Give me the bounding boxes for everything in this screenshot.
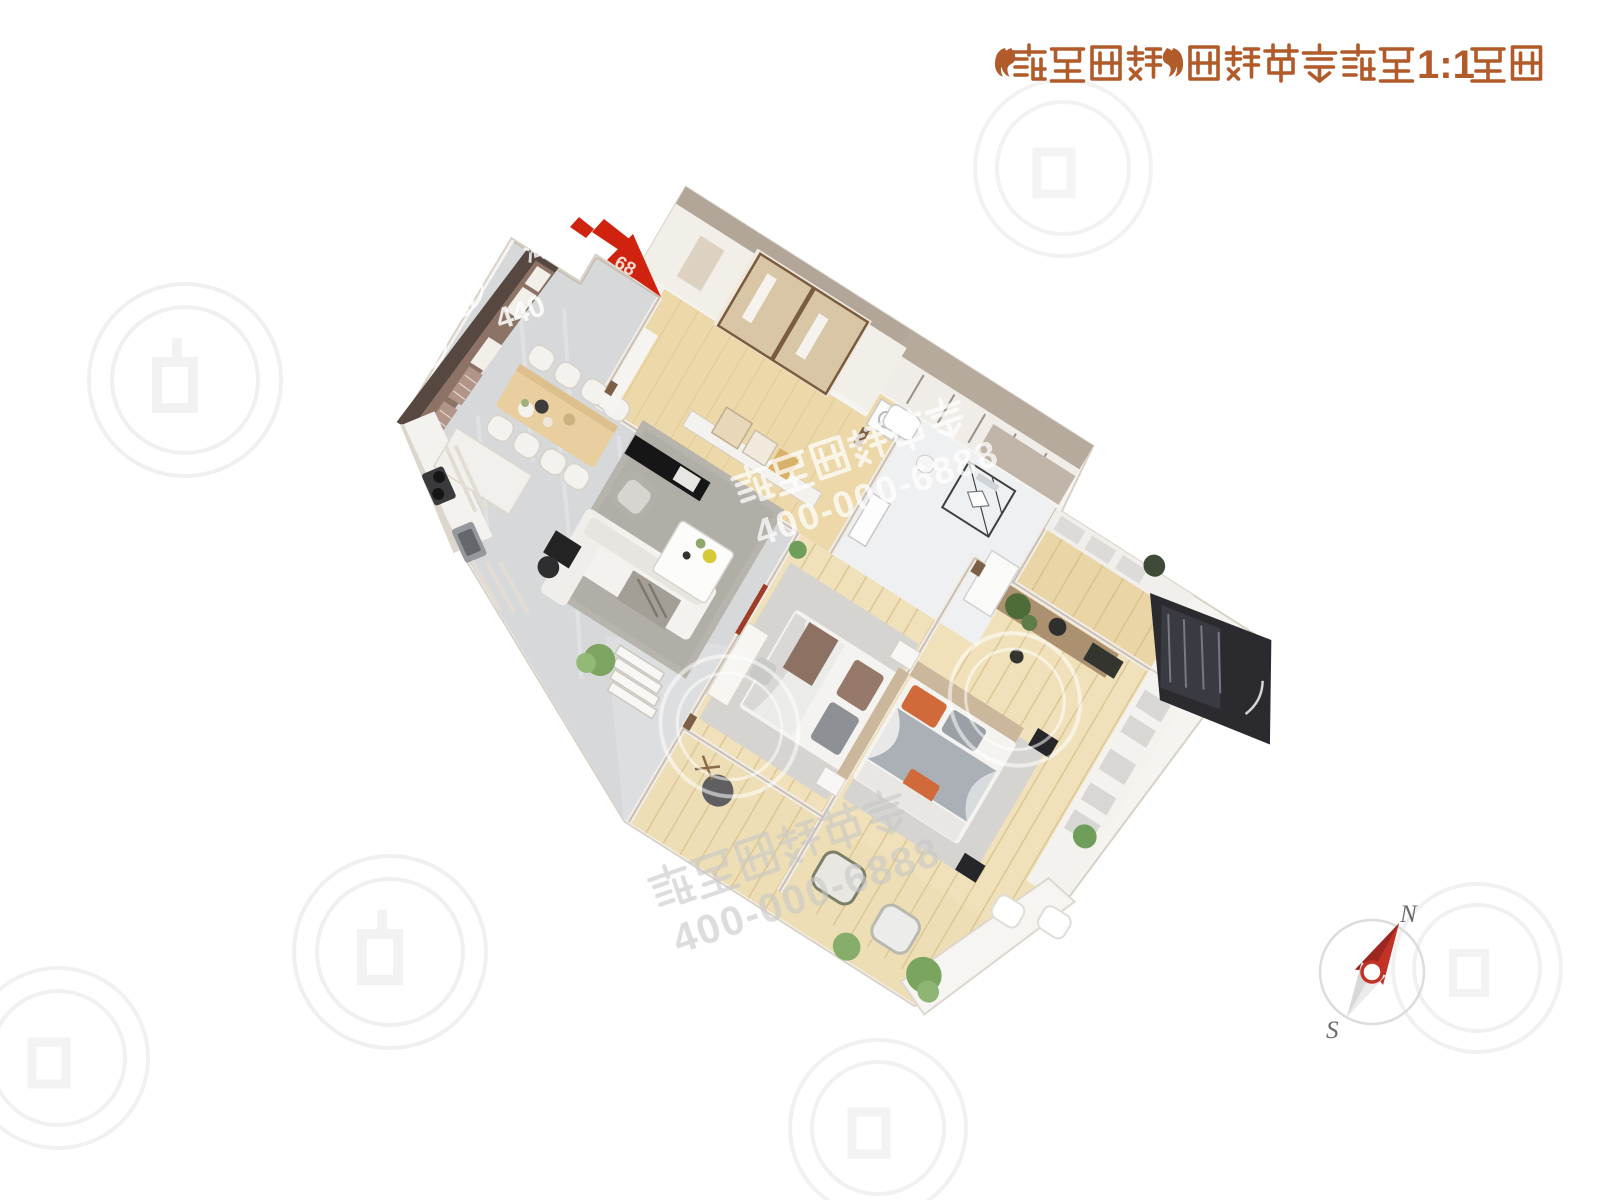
svg-text:N: N xyxy=(1399,901,1418,928)
svg-text:S: S xyxy=(1326,1017,1339,1044)
svg-text:1:1: 1:1 xyxy=(1417,43,1475,87)
